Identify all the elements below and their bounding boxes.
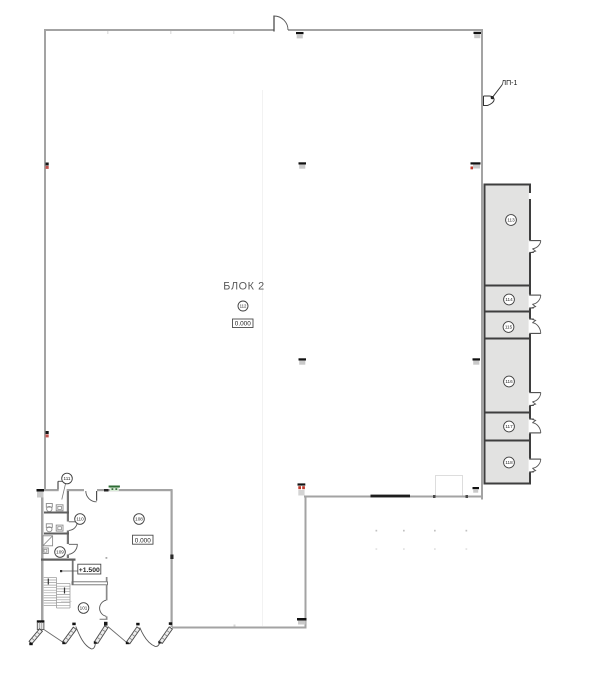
svg-text:0.000: 0.000	[235, 321, 251, 328]
svg-text:109: 109	[56, 550, 64, 555]
svg-text:115: 115	[505, 325, 513, 330]
svg-text:112: 112	[240, 304, 247, 309]
svg-text:БЛОК 2: БЛОК 2	[223, 281, 264, 293]
svg-text:101: 101	[80, 606, 88, 611]
svg-text:111: 111	[64, 476, 71, 481]
svg-text:ЛП-1: ЛП-1	[502, 80, 518, 87]
svg-text:+1.500: +1.500	[79, 567, 100, 574]
svg-text:0.000: 0.000	[135, 537, 151, 544]
svg-text:114: 114	[505, 297, 513, 302]
svg-text:108: 108	[135, 517, 143, 522]
svg-text:116: 116	[505, 379, 513, 384]
svg-text:110: 110	[76, 517, 84, 522]
svg-text:117: 117	[505, 424, 513, 429]
svg-text:118: 118	[505, 460, 513, 465]
svg-text:113: 113	[507, 218, 515, 223]
